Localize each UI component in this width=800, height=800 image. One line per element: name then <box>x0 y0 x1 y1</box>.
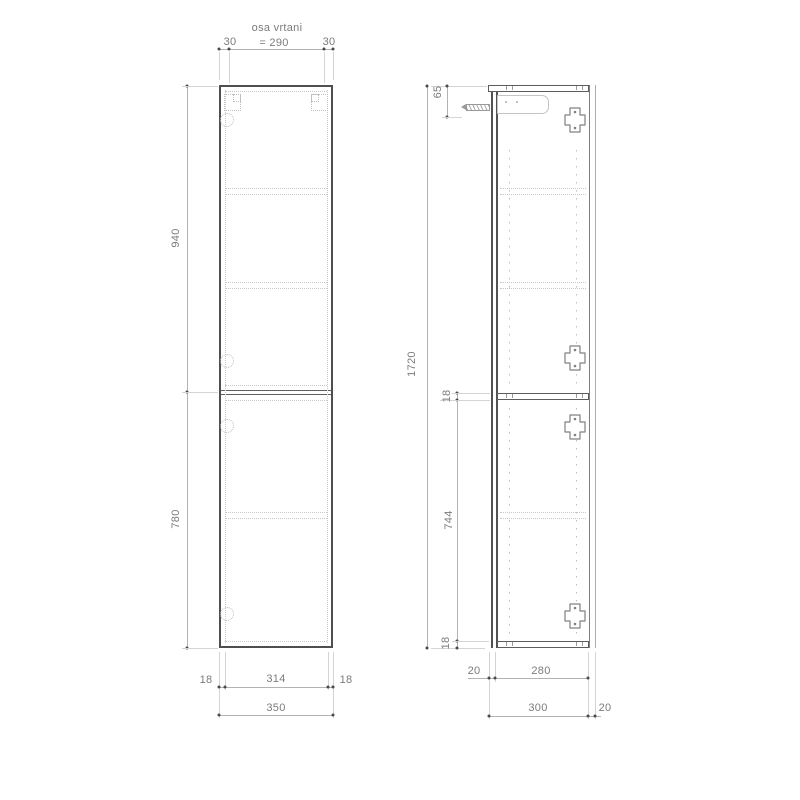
dim-300: 300 <box>528 702 547 714</box>
ext-line <box>225 652 226 690</box>
dim-marker <box>587 715 590 718</box>
dim-line <box>457 400 458 641</box>
hinge-cup-icon <box>220 113 234 127</box>
hanger-screw-tip-icon <box>461 104 466 110</box>
dim-280: 280 <box>531 665 550 677</box>
dim-65: 65 <box>432 86 444 99</box>
dim-940: 940 <box>170 228 182 247</box>
ext-line <box>489 652 490 719</box>
dim-marker <box>426 85 429 88</box>
dim-marker <box>332 48 335 51</box>
screw-mark-icon <box>582 86 583 90</box>
bracket-hole-icon <box>516 101 518 103</box>
front-panel-section <box>491 85 498 648</box>
wall-hanger-notch-icon <box>311 94 319 102</box>
dim-line <box>447 86 448 117</box>
hinge-plate-icon <box>564 414 586 440</box>
ext-line <box>324 52 325 83</box>
dim-marker <box>488 715 491 718</box>
shelf-hidden-line <box>500 288 586 289</box>
dim-line <box>187 85 188 648</box>
dim-line <box>219 49 333 50</box>
dim-350: 350 <box>266 702 285 714</box>
hinge-cup-icon <box>220 419 234 433</box>
drawing-canvas: osa vrtani = 290 30 30 940 780 18 314 18 <box>0 0 800 800</box>
screw-mark-icon <box>576 86 577 90</box>
ext-line <box>588 652 589 719</box>
dim-marker <box>224 686 227 689</box>
drill-axis-label: osa vrtani <box>252 22 303 34</box>
screw-mark-icon <box>576 642 577 646</box>
ext-line <box>595 652 596 719</box>
cabinet-front-outline <box>219 85 333 648</box>
screw-mark-icon <box>512 642 513 646</box>
dim-30-right: 30 <box>323 36 336 48</box>
hidden-line <box>327 90 328 643</box>
ext-line <box>229 52 230 83</box>
dim-marker <box>332 714 335 717</box>
shelf-hidden-line <box>225 188 327 189</box>
dim-744: 744 <box>443 510 455 529</box>
bracket-hole-icon <box>505 101 507 103</box>
dim-marker <box>218 48 221 51</box>
dim-line <box>489 716 601 717</box>
dim-780: 780 <box>170 509 182 528</box>
hinge-plate-icon <box>564 345 586 371</box>
shelf-hidden-line <box>500 512 586 513</box>
dim-marker <box>332 686 335 689</box>
dim-marker <box>228 48 231 51</box>
screw-mark-icon <box>576 394 577 398</box>
hidden-line <box>225 641 327 642</box>
shelf-pin-holes <box>576 408 577 635</box>
dim-20-back: 20 <box>599 702 612 714</box>
dim-314: 314 <box>266 673 285 685</box>
ext-line <box>328 652 329 690</box>
screw-mark-icon <box>512 394 513 398</box>
dim-line <box>427 86 428 648</box>
dim-marker <box>494 677 497 680</box>
hinge-cup-icon <box>220 607 234 621</box>
hinge-plate-icon <box>564 107 586 133</box>
dim-marker <box>488 677 491 680</box>
hinge-cup-icon <box>220 354 234 368</box>
dim-marker <box>323 48 326 51</box>
shelf-hidden-line <box>225 518 327 519</box>
top-panel-section <box>488 85 589 92</box>
dim-18-left: 18 <box>200 674 213 686</box>
ext-line <box>452 393 490 394</box>
ext-line <box>182 392 218 393</box>
hanger-screw-icon <box>466 104 490 111</box>
dim-18-middle: 18 <box>441 390 453 403</box>
dim-marker <box>587 677 590 680</box>
hidden-line <box>225 385 327 386</box>
dim-30-left: 30 <box>224 36 237 48</box>
dim-18-bottom: 18 <box>440 637 452 650</box>
dim-line <box>219 687 333 688</box>
screw-mark-icon <box>506 394 507 398</box>
shelf-pin-holes <box>509 408 510 635</box>
wall-hanger-notch-icon <box>233 94 241 102</box>
wall-bracket-icon <box>497 95 549 114</box>
shelf-hidden-line <box>500 194 586 195</box>
dim-20-front: 20 <box>468 665 481 677</box>
shelf-hidden-line <box>225 282 327 283</box>
shelf-hidden-line <box>225 194 327 195</box>
dim-18-right: 18 <box>340 674 353 686</box>
dim-marker <box>218 714 221 717</box>
ext-line <box>182 86 218 87</box>
hidden-line <box>225 91 327 92</box>
screw-mark-icon <box>582 394 583 398</box>
dim-marker <box>327 686 330 689</box>
ext-line <box>219 52 220 80</box>
hinge-plate-icon <box>564 603 586 629</box>
dim-marker <box>456 647 459 650</box>
screw-mark-icon <box>506 86 507 90</box>
dim-marker <box>426 647 429 650</box>
dim-marker <box>218 686 221 689</box>
shelf-hidden-line <box>500 282 586 283</box>
shelf-hidden-line <box>500 188 586 189</box>
dim-marker <box>594 715 597 718</box>
dim-line <box>219 715 333 716</box>
ext-line <box>333 52 334 80</box>
screw-mark-icon <box>582 642 583 646</box>
dim-1720: 1720 <box>406 351 418 377</box>
shelf-hidden-line <box>500 518 586 519</box>
dim-marker <box>446 85 449 88</box>
screw-mark-icon <box>512 86 513 90</box>
back-panel-section <box>589 85 596 648</box>
ext-line <box>182 648 218 649</box>
ext-line <box>452 641 489 642</box>
drill-axis-spacing-label: = 290 <box>259 37 288 49</box>
shelf-hidden-line <box>225 512 327 513</box>
door-split-line <box>221 390 331 395</box>
ext-line <box>442 117 462 118</box>
dim-line <box>468 678 588 679</box>
hidden-line <box>225 400 327 401</box>
shelf-hidden-line <box>225 288 327 289</box>
shelf-pin-holes <box>509 150 510 385</box>
screw-mark-icon <box>506 642 507 646</box>
